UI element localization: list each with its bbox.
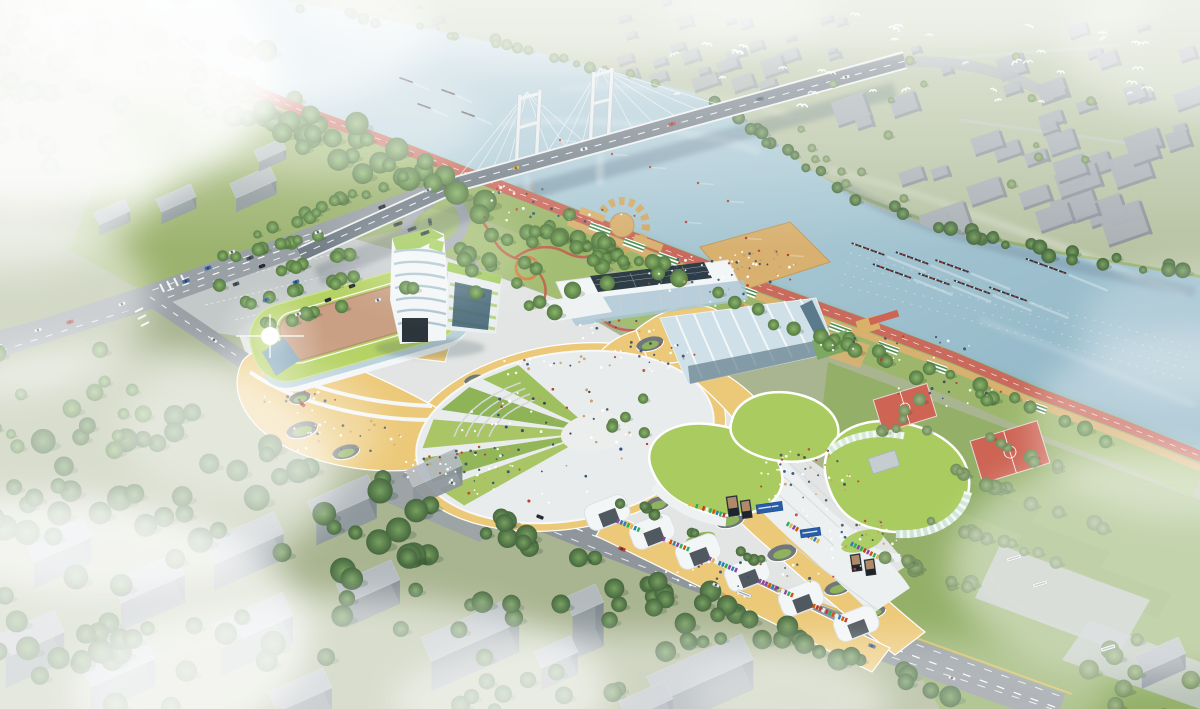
tree	[1028, 94, 1036, 102]
person-dot	[891, 542, 894, 545]
person-dot	[500, 191, 502, 193]
person-dot	[825, 499, 828, 502]
person-dot	[579, 324, 581, 326]
city-block-top	[425, 33, 449, 54]
court-3-green	[812, 330, 852, 360]
person-dot	[841, 524, 844, 527]
car-windshield	[36, 329, 39, 332]
tree-shadow	[1045, 256, 1059, 262]
massing-top	[211, 592, 293, 647]
fog-patch	[0, 0, 280, 210]
city-block-front	[1042, 94, 1071, 106]
tree-shadow	[243, 302, 255, 307]
tree-shadow	[244, 119, 260, 125]
shopfront-tile	[676, 542, 680, 547]
tree-shadow	[543, 232, 558, 238]
city-block-front	[373, 43, 389, 51]
tree-shadow	[302, 213, 314, 218]
tree-shadow	[456, 705, 474, 709]
massing-block	[336, 560, 400, 629]
tree	[655, 583, 674, 602]
tree-shadow	[403, 288, 416, 293]
city-block-front	[541, 90, 569, 102]
tree	[366, 529, 392, 555]
person-dot	[796, 564, 798, 566]
tree	[816, 166, 826, 176]
rower	[917, 259, 919, 261]
tree-shadow	[916, 400, 928, 405]
tree-shadow	[14, 446, 28, 451]
person-dot	[582, 337, 584, 339]
person-dot	[861, 534, 863, 536]
car-windshield	[212, 338, 215, 341]
person-dot	[939, 342, 941, 344]
tree-shadow	[1083, 160, 1091, 163]
shopfront-tile	[734, 568, 738, 573]
tree-shadow	[755, 130, 767, 135]
tree-shadow	[129, 390, 141, 395]
city-block-side	[1114, 51, 1122, 67]
tree	[212, 67, 227, 82]
car-body	[536, 514, 544, 520]
tree-shadow	[689, 533, 698, 537]
tree-shadow	[504, 45, 515, 49]
person-dot	[593, 418, 595, 420]
tree-shadow	[590, 260, 602, 265]
tree-shadow	[610, 424, 620, 428]
person-dot	[586, 490, 588, 492]
awning-base	[780, 302, 803, 317]
person-dot	[930, 387, 933, 390]
awning-base	[828, 321, 851, 336]
tree-shadow	[649, 597, 663, 603]
shopfront-tile	[722, 513, 726, 518]
rower	[879, 266, 881, 268]
massing-block	[1134, 637, 1185, 689]
shopfront-tile	[686, 547, 690, 552]
person-dot	[635, 320, 637, 322]
tree-shadow	[628, 74, 637, 78]
tree	[404, 499, 428, 523]
tree-shadow	[922, 84, 929, 87]
person-dot	[548, 502, 550, 504]
person-dot	[454, 471, 456, 473]
person-dot	[593, 418, 595, 420]
person-dot	[693, 354, 695, 356]
tree-shadow	[23, 649, 46, 658]
tree	[736, 546, 746, 556]
city-block-top	[648, 69, 669, 85]
bird-icon	[826, 71, 835, 74]
shopfront-tile	[777, 587, 781, 592]
city-block-side	[1137, 204, 1145, 219]
boat-wake	[432, 110, 448, 117]
tree-shadow	[216, 75, 230, 81]
tree	[608, 418, 619, 429]
boat-hull	[873, 264, 911, 278]
shopfront-tile	[813, 537, 817, 542]
person-dot	[803, 456, 806, 459]
person-dot	[671, 270, 673, 272]
city-block	[1024, 147, 1052, 169]
shopfront-tile	[807, 533, 811, 538]
person-dot	[896, 540, 898, 542]
city-block	[372, 12, 388, 27]
tree	[569, 240, 583, 254]
person-dot	[340, 448, 342, 450]
awning-base	[1024, 399, 1047, 414]
tree	[203, 106, 216, 119]
bird-icon	[1057, 70, 1064, 73]
courtyard-garden	[866, 608, 882, 618]
rower	[1032, 260, 1034, 262]
person-dot	[630, 434, 632, 436]
tree	[694, 594, 712, 612]
city-block-side	[419, 6, 423, 10]
city-block-side	[392, 5, 397, 11]
tree-shadow	[846, 338, 858, 343]
person-dot	[470, 411, 472, 413]
person-dot	[677, 579, 679, 581]
parking-lot	[150, 232, 436, 345]
city-block	[830, 91, 873, 129]
city-block-front	[726, 20, 736, 26]
person-dot	[776, 273, 778, 275]
car-body	[948, 675, 956, 681]
rowing-shell	[1025, 258, 1109, 291]
tree	[555, 686, 573, 704]
tree-shadow	[569, 290, 585, 297]
spine-steps	[738, 430, 878, 610]
bird-icon	[1142, 86, 1153, 90]
tree-shadow	[255, 250, 268, 255]
tree-shadow	[171, 559, 190, 567]
city-block-top	[535, 74, 568, 101]
person-dot	[502, 403, 504, 405]
car-windshield	[845, 76, 848, 79]
person-dot	[488, 467, 491, 470]
tree	[378, 182, 388, 192]
person-dot	[659, 360, 661, 362]
tree	[165, 549, 185, 569]
city-block	[1035, 200, 1077, 235]
car	[228, 249, 235, 254]
tree-shadow	[53, 62, 74, 70]
person-dot	[963, 347, 966, 350]
person-dot	[333, 427, 335, 429]
sunken-courtyard	[644, 494, 673, 514]
massing-side	[368, 475, 377, 519]
person-dot	[765, 461, 767, 463]
tree-shadow	[901, 419, 910, 422]
sunken-courtyard	[594, 348, 631, 372]
city-block	[819, 13, 835, 27]
deck-lane-dashes	[300, 61, 905, 255]
kayak-hull	[685, 221, 687, 223]
person-dot	[755, 263, 758, 266]
tree-shadow	[886, 135, 895, 139]
tree	[333, 191, 347, 205]
tree-shadow	[358, 174, 378, 182]
city-block-side	[1156, 145, 1164, 160]
gear-dock	[579, 201, 666, 272]
person-dot	[785, 455, 788, 458]
gym-roof-skylight	[590, 262, 712, 292]
city-block-front	[651, 77, 670, 86]
person-dot	[719, 571, 722, 574]
campus-paving	[238, 252, 908, 615]
city-block-front	[1114, 214, 1144, 227]
tree-shadow	[352, 124, 374, 133]
tree-shadow	[168, 161, 181, 166]
person-dot	[633, 215, 635, 217]
city-block-front	[1053, 93, 1068, 101]
person-dot	[601, 409, 604, 412]
city-block-front	[672, 47, 687, 55]
gym-mullions	[580, 284, 722, 320]
city-block-side	[1062, 78, 1072, 99]
shopfront-tile	[761, 580, 765, 585]
rower	[946, 282, 948, 284]
tree-shadow	[96, 49, 109, 54]
person-dot	[701, 264, 703, 266]
city-block	[725, 46, 749, 64]
person-dot	[506, 447, 509, 450]
city-block-front	[1005, 89, 1023, 98]
person-dot	[648, 282, 650, 284]
person-dot	[651, 370, 653, 372]
tree-shadow	[949, 582, 960, 586]
city-block-side	[668, 0, 673, 6]
city-block-top	[372, 12, 387, 24]
bird-icon	[926, 34, 933, 36]
tree-shadow	[925, 431, 935, 435]
tree	[15, 388, 27, 400]
person-dot	[735, 261, 738, 264]
city-block-side	[1067, 202, 1077, 224]
city-block-front	[619, 59, 636, 67]
tree	[103, 692, 128, 709]
person-dot	[478, 446, 481, 449]
shopfront-tile	[711, 558, 715, 563]
tree-shadow	[338, 279, 351, 284]
tree-shadow	[103, 142, 119, 148]
person-dot	[324, 421, 326, 423]
tree-shadow	[341, 200, 352, 205]
tree-shadow	[835, 188, 846, 192]
tree	[645, 589, 660, 604]
rower	[973, 287, 975, 289]
person-dot	[369, 449, 372, 452]
person-dot	[497, 448, 499, 450]
person-dot	[307, 432, 309, 434]
city-block-top	[1097, 49, 1121, 70]
boat-wake	[952, 286, 992, 302]
tree-shadow	[706, 591, 727, 599]
person-dot	[422, 457, 425, 460]
tree	[964, 524, 979, 539]
tree	[812, 645, 826, 659]
boat-wake	[886, 256, 926, 272]
tree	[465, 264, 479, 278]
tree	[231, 79, 249, 97]
tree	[550, 229, 568, 247]
shopfront-tile	[715, 510, 719, 515]
person-dot	[628, 431, 630, 433]
tree	[60, 480, 82, 502]
person-dot	[269, 401, 271, 403]
tree	[451, 696, 470, 709]
tree	[520, 538, 539, 557]
person-dot	[509, 423, 511, 425]
bird-flock	[670, 13, 1153, 107]
rower	[935, 279, 937, 281]
city-block-side	[385, 37, 391, 47]
poster-frame	[850, 554, 862, 572]
shopfront-tile	[879, 556, 883, 561]
entry-gate	[722, 553, 773, 594]
tree	[547, 304, 563, 320]
person-dot	[846, 475, 848, 477]
person-dot	[968, 345, 970, 347]
tree-shadow	[263, 323, 274, 328]
boat-hull	[935, 260, 968, 272]
tree-shadow	[349, 156, 364, 162]
city-block	[529, 79, 551, 97]
tree	[1096, 258, 1109, 271]
kayak-wake	[652, 168, 666, 169]
tree	[520, 672, 536, 688]
city-block-side	[963, 202, 976, 233]
tree-shadow	[825, 159, 832, 162]
lane-line	[844, 274, 1189, 369]
courtyard-lawn	[683, 528, 718, 551]
tree	[584, 62, 596, 74]
person-dot	[532, 397, 535, 400]
tree	[1087, 515, 1103, 531]
tree-shadow	[285, 122, 306, 130]
tree-shadow	[1081, 429, 1096, 435]
person-dot	[714, 305, 716, 307]
person-dot	[349, 430, 351, 432]
car-body	[668, 121, 676, 126]
courtyard-garden	[292, 424, 313, 438]
striped-facade-east-2	[896, 492, 968, 534]
shopfront-tile	[714, 559, 718, 564]
tree-shadow	[618, 504, 628, 508]
massing-block	[25, 517, 91, 588]
massing-side	[595, 584, 603, 646]
city-block	[1172, 121, 1190, 136]
sunken-courtyard	[288, 389, 312, 406]
city-block-top	[1173, 85, 1200, 112]
person-dot	[318, 423, 321, 426]
tree-shadow	[180, 514, 197, 521]
tree	[408, 583, 423, 598]
rower	[898, 252, 900, 254]
city-block-top	[698, 66, 712, 77]
person-dot	[588, 213, 591, 216]
city-block	[941, 64, 956, 77]
city-block-top	[398, 34, 421, 54]
tree	[610, 248, 624, 262]
promenade-lawn	[250, 108, 1200, 478]
gate-opening	[792, 594, 814, 614]
city-block-front	[1117, 175, 1155, 191]
kayak	[697, 182, 714, 185]
car-body	[228, 249, 235, 254]
facade-billboards	[726, 495, 876, 575]
person-dot	[541, 493, 543, 495]
sun-rays	[236, 314, 304, 358]
tree-shadow	[263, 455, 278, 461]
tree	[347, 8, 358, 19]
person-dot	[691, 281, 694, 284]
tree-shadow	[978, 239, 990, 244]
city-block-top	[1072, 150, 1114, 182]
sun-glow	[215, 281, 325, 391]
city-block-top	[431, 14, 446, 25]
tree-shadow	[347, 12, 355, 15]
tree-shadow	[984, 539, 997, 544]
car-windshield	[396, 222, 399, 225]
tree	[286, 459, 310, 483]
tree	[191, 66, 209, 84]
city-block	[1045, 127, 1081, 159]
tree	[473, 190, 497, 214]
person-dot	[880, 358, 883, 361]
person-dot	[303, 390, 305, 392]
south-connector-road	[150, 297, 408, 462]
floating-deck	[700, 222, 830, 292]
person-dot	[305, 447, 308, 450]
city-block-front	[1066, 181, 1085, 190]
person-dot	[779, 463, 781, 465]
gate-green-roof	[838, 525, 886, 558]
city-block-side	[735, 57, 742, 69]
tree	[227, 35, 249, 57]
tree	[42, 0, 62, 15]
massing-front	[259, 149, 286, 171]
person-dot	[683, 358, 685, 360]
city-block-front	[975, 144, 1006, 157]
tree-shadow	[220, 256, 231, 260]
tree-shadow	[264, 116, 283, 124]
tree-shadow	[1, 596, 18, 603]
person-dot	[298, 399, 300, 401]
tree	[222, 106, 243, 127]
tree-shadow	[483, 682, 499, 688]
rower	[423, 105, 425, 107]
tree-shadow	[949, 586, 959, 590]
tree-shadow	[180, 42, 192, 47]
tree-shadow	[300, 264, 312, 269]
bridge-shadow	[480, 90, 895, 205]
tree	[604, 578, 624, 598]
tree-shadow	[333, 256, 345, 261]
tree	[1052, 463, 1063, 474]
tree-shadow	[289, 266, 301, 271]
tree	[51, 478, 67, 494]
rower	[945, 263, 947, 265]
person-dot	[884, 337, 887, 340]
tree	[171, 126, 192, 147]
tree-shadow	[130, 494, 149, 501]
tree-shadow	[936, 228, 947, 232]
car	[536, 514, 544, 520]
tree	[323, 129, 342, 148]
shopfront-tile	[758, 579, 762, 584]
